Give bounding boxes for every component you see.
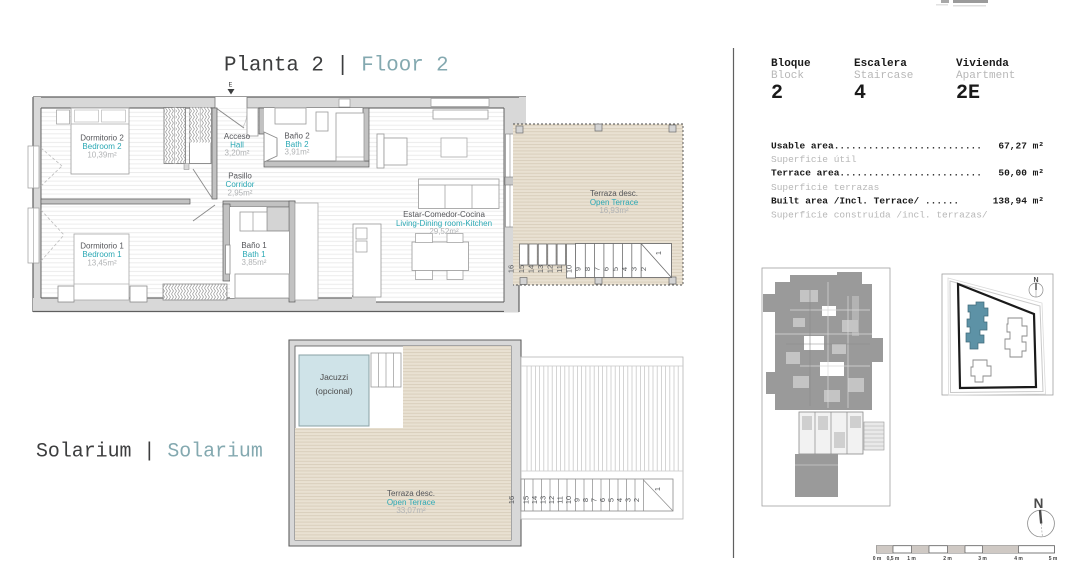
svg-text:Usable area...................: Usable area..........................	[771, 141, 982, 152]
svg-text:Built area /Incl. Terrace/ ...: Built area /Incl. Terrace/ ......	[771, 196, 959, 207]
svg-text:Bloque: Bloque	[771, 58, 811, 70]
svg-text:16: 16	[507, 265, 516, 273]
svg-text:2E: 2E	[956, 82, 980, 105]
svg-text:1: 1	[653, 487, 662, 491]
svg-text:5: 5	[611, 267, 620, 271]
svg-text:Terraza desc.: Terraza desc.	[387, 489, 435, 498]
svg-text:Terrace area..................: Terrace area.........................	[771, 168, 982, 179]
svg-text:Baño 1: Baño 1	[241, 241, 267, 250]
svg-text:Superficie útil: Superficie útil	[771, 154, 857, 165]
svg-text:3 m: 3 m	[978, 556, 987, 562]
svg-text:13: 13	[536, 265, 545, 273]
svg-text:3,20m²: 3,20m²	[225, 149, 250, 158]
svg-text:2: 2	[771, 82, 783, 105]
svg-text:Superficie terrazas: Superficie terrazas	[771, 182, 879, 193]
svg-text:10: 10	[565, 265, 574, 273]
svg-text:5 m: 5 m	[1049, 556, 1058, 562]
svg-text:15: 15	[517, 265, 526, 273]
svg-text:Solarium | Solarium: Solarium | Solarium	[36, 440, 263, 463]
svg-text:4: 4	[854, 82, 866, 105]
svg-text:3,85m²: 3,85m²	[242, 258, 267, 267]
svg-text:Vivienda: Vivienda	[956, 58, 1009, 70]
svg-text:50,00 m²: 50,00 m²	[998, 168, 1044, 179]
svg-text:2: 2	[632, 498, 641, 502]
svg-text:0,5 m: 0,5 m	[887, 556, 900, 562]
svg-text:Planta 2 | Floor 2: Planta 2 | Floor 2	[224, 55, 449, 78]
svg-text:1 m: 1 m	[907, 556, 916, 562]
svg-text:3: 3	[630, 267, 639, 271]
svg-text:11: 11	[555, 265, 564, 273]
svg-text:Block: Block	[771, 70, 804, 82]
svg-text:12: 12	[546, 265, 555, 273]
svg-text:0 m: 0 m	[873, 556, 882, 562]
svg-text:2,95m²: 2,95m²	[228, 189, 253, 198]
svg-text:16: 16	[507, 496, 516, 504]
svg-text:N: N	[1034, 496, 1044, 511]
svg-text:Escalera: Escalera	[854, 58, 907, 70]
svg-text:Superficie construida /incl. t: Superficie construida /incl. terrazas/	[771, 210, 988, 221]
svg-text:3,91m²: 3,91m²	[285, 148, 310, 157]
svg-text:16,93m²: 16,93m²	[599, 206, 629, 215]
svg-text:Staircase: Staircase	[854, 70, 913, 82]
svg-text:9: 9	[574, 267, 583, 271]
svg-text:10,39m²: 10,39m²	[87, 151, 117, 160]
svg-text:4: 4	[620, 267, 629, 271]
svg-text:2 m: 2 m	[943, 556, 952, 562]
svg-text:Terraza desc.: Terraza desc.	[590, 189, 638, 198]
svg-text:14: 14	[527, 265, 536, 273]
svg-text:29,52m²: 29,52m²	[429, 227, 459, 236]
svg-text:13,45m²: 13,45m²	[87, 259, 117, 268]
svg-text:2: 2	[639, 267, 648, 271]
svg-text:8: 8	[583, 267, 592, 271]
svg-text:N: N	[1033, 277, 1038, 284]
svg-text:E: E	[229, 82, 233, 89]
svg-text:138,94 m²: 138,94 m²	[993, 196, 1044, 207]
svg-text:6: 6	[602, 267, 611, 271]
svg-text:4 m: 4 m	[1014, 556, 1023, 562]
svg-text:67,27 m²: 67,27 m²	[998, 141, 1044, 152]
svg-text:(opcional): (opcional)	[315, 386, 352, 396]
svg-text:Apartment: Apartment	[956, 70, 1015, 82]
svg-text:Jacuzzi: Jacuzzi	[320, 372, 348, 382]
svg-text:1: 1	[654, 251, 663, 255]
svg-text:7: 7	[592, 267, 601, 271]
svg-text:33,07m²: 33,07m²	[396, 506, 426, 515]
svg-text:Estar-Comedor-Cocina: Estar-Comedor-Cocina	[403, 210, 485, 219]
